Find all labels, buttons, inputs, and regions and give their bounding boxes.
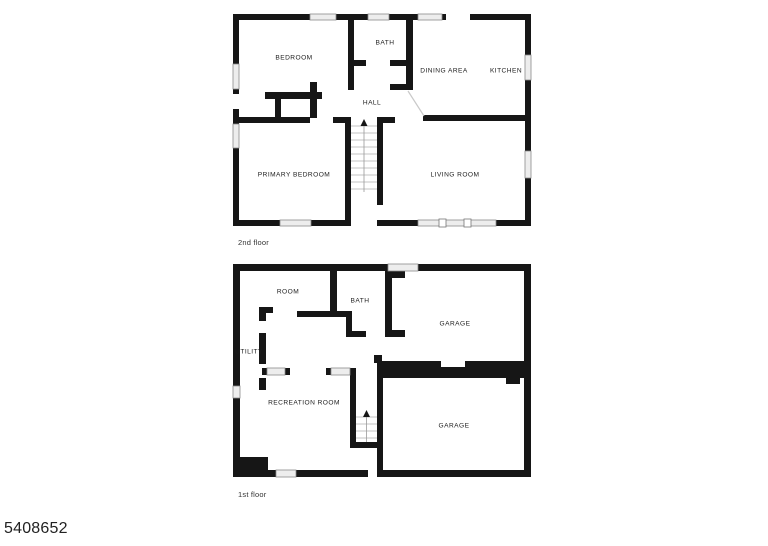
- wall: [346, 317, 352, 337]
- room-label-garage-lower: GARAGE: [439, 423, 470, 430]
- wall: [330, 264, 337, 313]
- window: [276, 470, 296, 477]
- floor-caption-1st: 1st floor: [238, 490, 266, 499]
- floorplan-image: BEDROOM BATH DINING AREA KITCHEN HALL PR…: [0, 0, 768, 546]
- wall: [348, 20, 354, 90]
- wall: [310, 82, 317, 118]
- wall: [239, 117, 310, 123]
- wall: [259, 307, 273, 313]
- wall: [233, 264, 531, 271]
- wall: [326, 368, 331, 375]
- room-label-dining-area: DINING AREA: [420, 68, 467, 75]
- wall: [390, 60, 406, 66]
- first-floor-plan: [233, 264, 531, 477]
- window: [331, 368, 350, 375]
- window: [233, 64, 239, 89]
- window-mullion: [439, 219, 446, 227]
- wall: [345, 117, 351, 220]
- window-mullion: [464, 219, 471, 227]
- wall: [275, 99, 281, 118]
- wall: [383, 117, 395, 123]
- window: [418, 14, 442, 20]
- window: [388, 264, 418, 271]
- wall: [423, 115, 531, 121]
- wall: [352, 331, 366, 337]
- room-label-garage-upper: GARAGE: [440, 321, 471, 328]
- room-label-primary-bedroom: PRIMARY BEDROOM: [258, 172, 330, 179]
- wall: [392, 330, 405, 337]
- wall: [385, 271, 392, 337]
- wall: [377, 117, 383, 205]
- window: [310, 14, 336, 20]
- wall: [374, 355, 382, 363]
- wall: [406, 20, 413, 90]
- door-opening: [231, 94, 241, 109]
- wall: [506, 374, 520, 384]
- wall: [354, 60, 366, 66]
- room-label-recreation-room: RECREATION ROOM: [268, 400, 340, 407]
- wall: [262, 368, 267, 375]
- wall: [392, 271, 405, 278]
- wall: [233, 457, 268, 472]
- window: [525, 151, 531, 178]
- room-label-kitchen: KITCHEN: [490, 68, 522, 75]
- mls-number: 5408652: [4, 520, 68, 538]
- wall: [350, 368, 356, 445]
- wall: [377, 378, 383, 477]
- door-opening: [258, 321, 267, 333]
- door-opening: [441, 361, 465, 367]
- stairs-first-floor: [356, 410, 377, 442]
- wall: [350, 442, 383, 448]
- window: [280, 220, 311, 226]
- stair-up-arrow-icon: [363, 410, 370, 417]
- room-label-hall: HALL: [363, 100, 381, 107]
- room-label-room: ROOM: [277, 289, 299, 296]
- room-label-bath-2f: BATH: [376, 40, 395, 47]
- wall: [233, 14, 239, 226]
- wall: [377, 470, 531, 477]
- window: [525, 55, 531, 80]
- room-label-living-room: LIVING ROOM: [431, 172, 480, 179]
- room-label-bedroom: BEDROOM: [275, 55, 312, 62]
- wall: [285, 368, 290, 375]
- window: [233, 386, 240, 398]
- door-opening: [446, 13, 470, 21]
- room-label-bath-1f: BATH: [351, 298, 370, 305]
- window: [233, 124, 239, 148]
- window: [267, 368, 285, 375]
- wall: [390, 84, 406, 90]
- floor-caption-2nd: 2nd floor: [238, 238, 269, 247]
- room-label-utility: UTILITY: [235, 349, 263, 356]
- wall: [297, 311, 352, 317]
- floorplan-drawing: [0, 0, 768, 546]
- window: [418, 220, 496, 226]
- stairs-second-floor: [351, 119, 377, 192]
- window: [368, 14, 389, 20]
- diagonal-wall-line: [408, 91, 424, 116]
- stair-up-arrow-icon: [361, 119, 368, 126]
- wall: [233, 264, 240, 477]
